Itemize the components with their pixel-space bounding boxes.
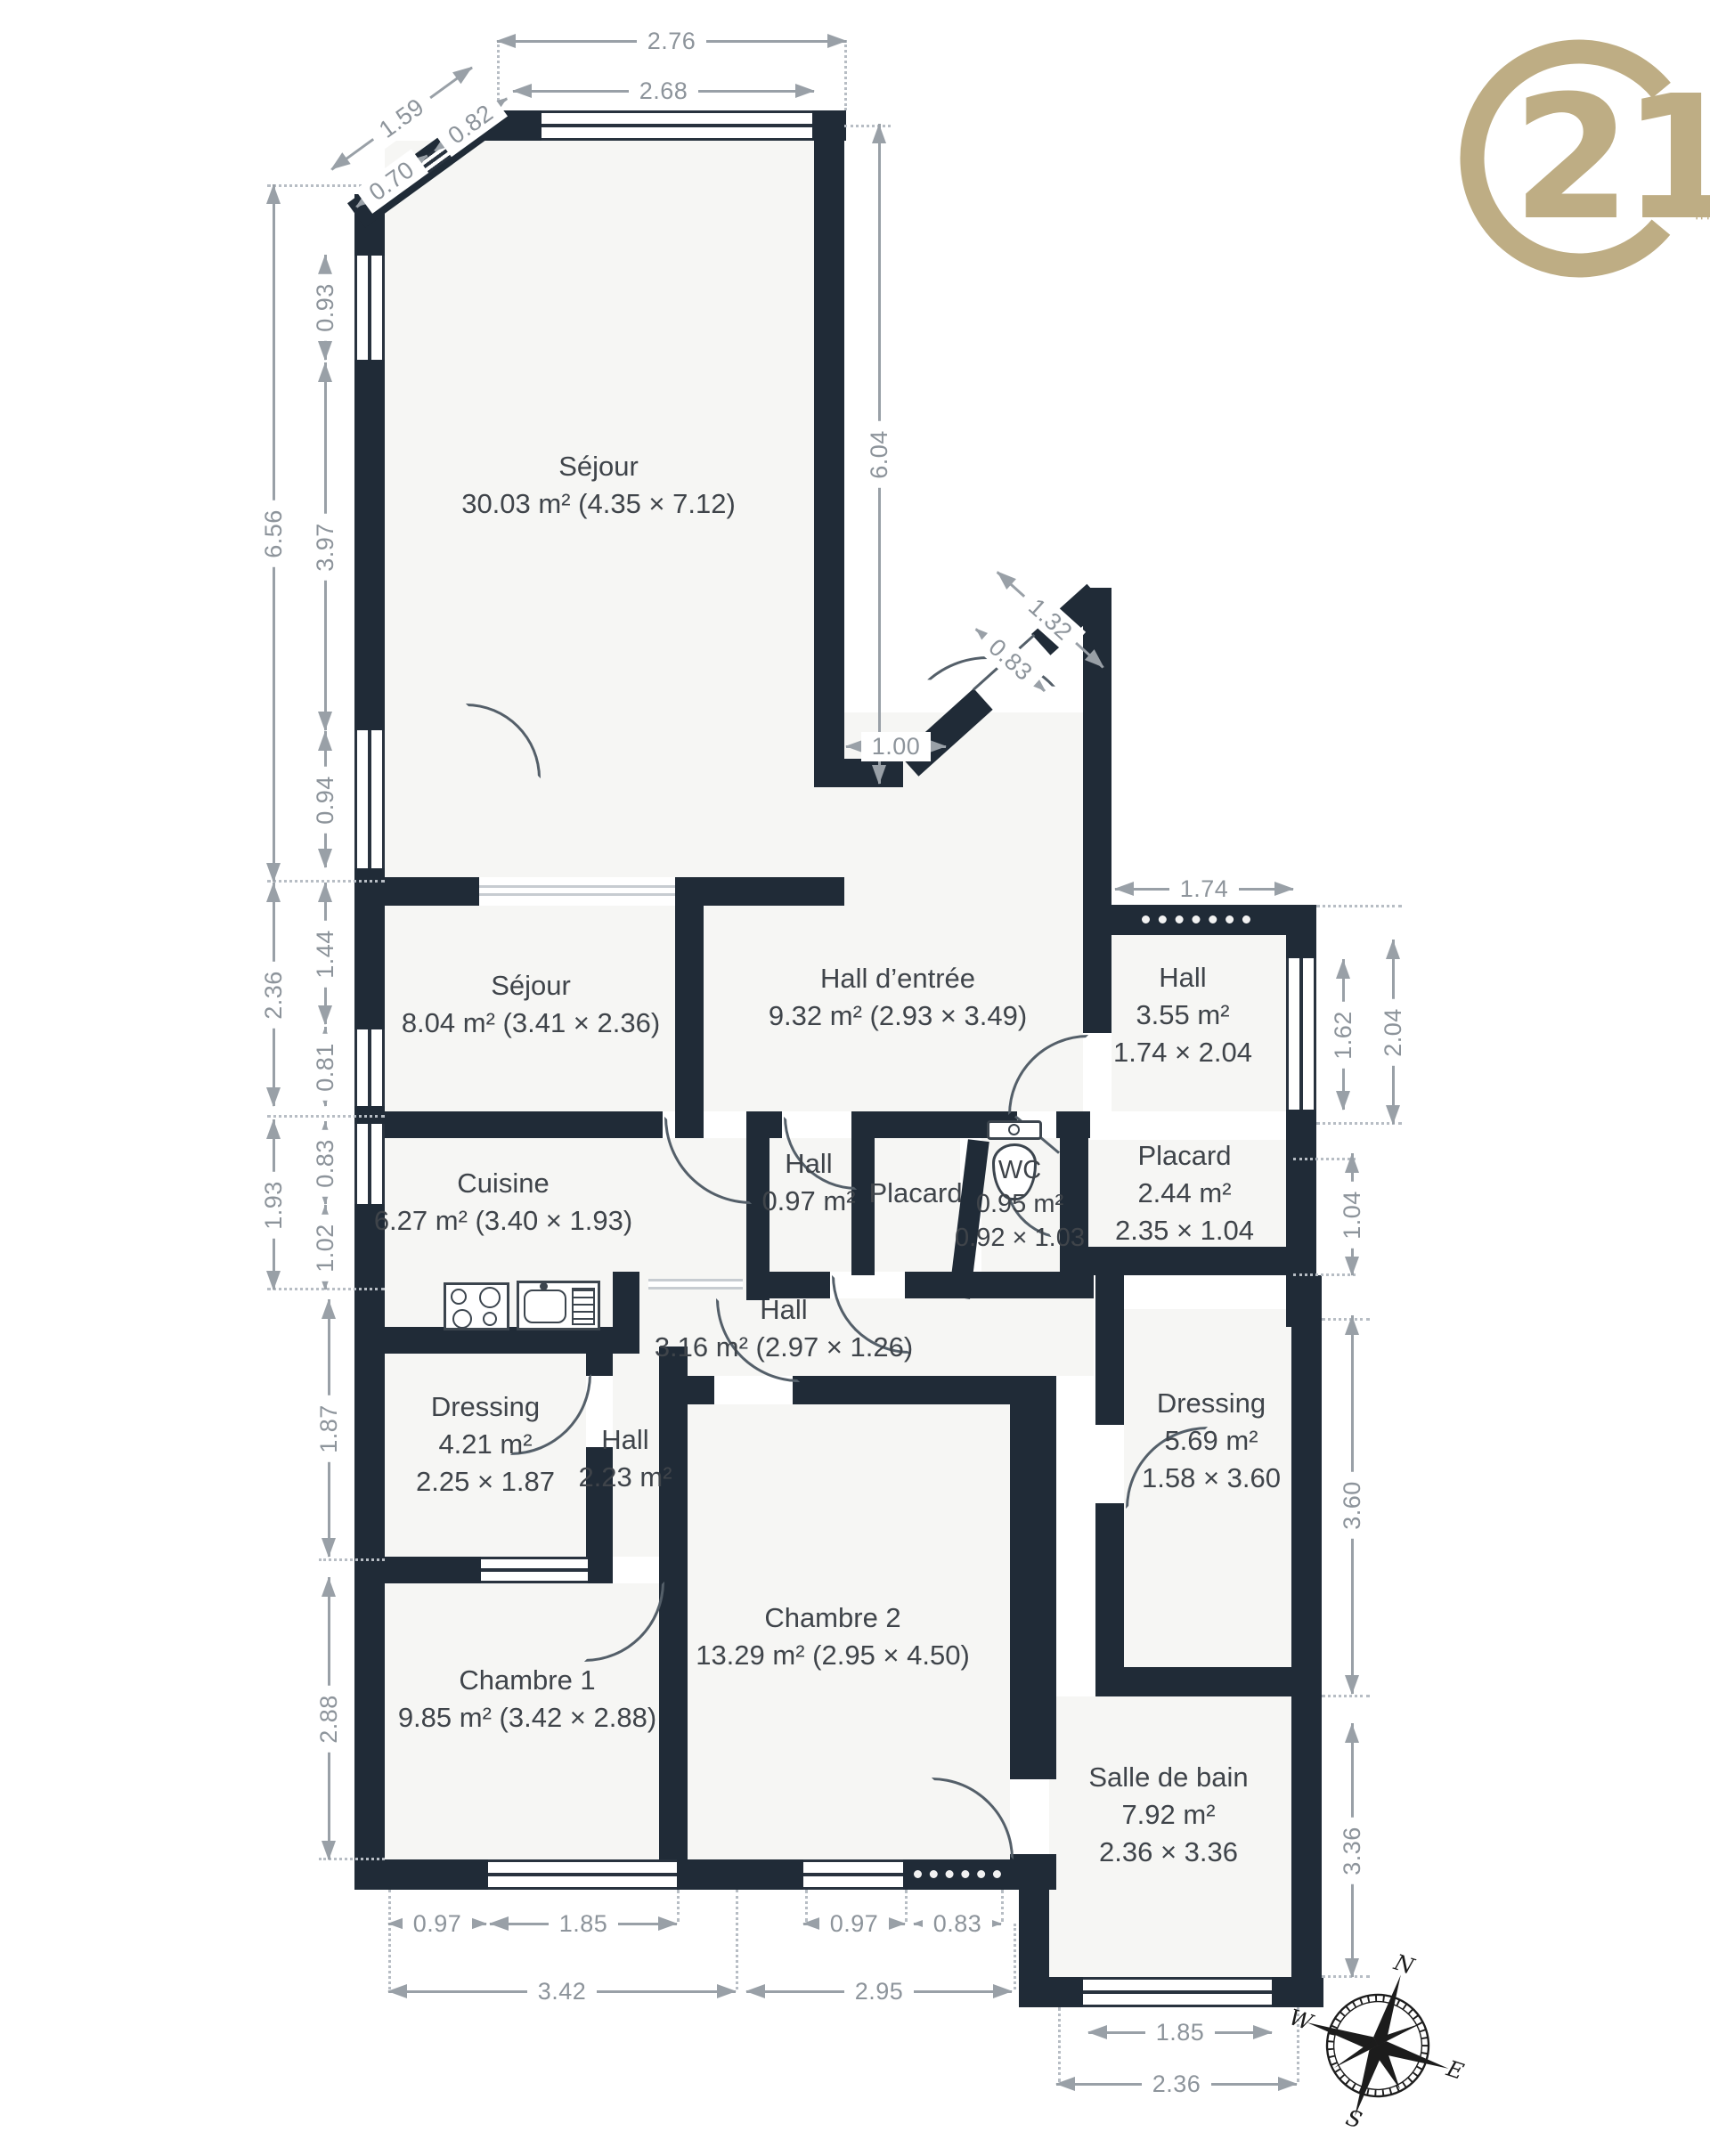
room-label-dressing-1: Dressing4.21 m²2.25 × 1.87 — [416, 1388, 555, 1501]
logo-number: 21 — [1512, 60, 1710, 258]
dim-arrow — [318, 712, 332, 731]
dim-arrow — [266, 1087, 281, 1107]
wall-opening — [648, 1279, 743, 1290]
dim-arrow — [266, 863, 281, 883]
dimension: 0.97 — [388, 1911, 486, 1936]
dimension-value: 0.94 — [311, 767, 340, 834]
extension-line — [1014, 1924, 1016, 1989]
dim-arrow — [886, 1916, 906, 1931]
dimension: 1.93 — [261, 1120, 286, 1290]
dimension: 3.36 — [1339, 1724, 1364, 1977]
window — [803, 1859, 903, 1890]
dim-arrow — [318, 341, 332, 361]
dim-arrow — [318, 1005, 332, 1025]
window-dashed — [1142, 915, 1250, 923]
room-label-placard-1: Placard — [868, 1175, 962, 1212]
dimension: 0.94 — [313, 732, 338, 867]
dimension: 1.62 — [1331, 960, 1356, 1110]
dimension: 0.83 — [914, 1911, 1001, 1936]
wall — [1019, 1696, 1049, 1779]
dimension: 1.02 — [313, 1206, 338, 1290]
room-name: Placard — [1115, 1137, 1254, 1175]
wall — [1062, 1247, 1291, 1275]
dimension: 0.93 — [313, 256, 338, 360]
room-name: Hall — [761, 1145, 855, 1183]
extension-line — [736, 1890, 738, 1989]
toilet-button-icon — [1008, 1124, 1020, 1135]
room-area: 5.69 m² — [1142, 1422, 1281, 1460]
room-label-wc: WC0.95 m²0.92 × 1.03 — [955, 1153, 1085, 1255]
dim-arrow — [872, 124, 886, 143]
dimension: 2.88 — [316, 1578, 341, 1859]
room-name: Hall — [578, 1421, 672, 1459]
room-name: Dressing — [1142, 1385, 1281, 1422]
dim-arrow — [318, 731, 332, 751]
window — [354, 730, 385, 868]
extension-line — [1322, 1695, 1370, 1697]
dimension: 0.83 — [313, 1122, 338, 1204]
dimension-value: 1.62 — [1329, 1002, 1358, 1069]
wall — [613, 1272, 639, 1354]
wall — [746, 1111, 782, 1138]
dimension-value: 2.36 — [1142, 2070, 1212, 2099]
window — [1083, 1977, 1272, 2007]
dimension-value: 1.02 — [311, 1215, 340, 1281]
dim-arrow — [1336, 1091, 1350, 1111]
compass-n: N — [1390, 1949, 1419, 1980]
dim-arrow — [993, 1984, 1013, 1998]
wall — [354, 194, 385, 1861]
dimension-value: 0.97 — [819, 1909, 890, 1939]
dim-arrow — [1274, 882, 1294, 896]
dim-arrow — [496, 34, 516, 48]
dimension: 1.87 — [316, 1300, 341, 1557]
wall — [354, 1327, 622, 1354]
room-label-sejour-1: Séjour30.03 m² (4.35 × 7.12) — [461, 448, 736, 523]
room-size: 2.35 × 1.04 — [1115, 1212, 1254, 1249]
room-name: Hall — [1113, 959, 1252, 997]
dim-arrow — [322, 1577, 336, 1597]
dimension-value: 2.36 — [259, 962, 289, 1029]
dim-arrow — [512, 84, 532, 98]
wall — [1291, 1275, 1322, 2007]
dimension-value: 1.87 — [314, 1395, 344, 1462]
dimension-value: 6.04 — [865, 421, 894, 488]
dimension: 2.95 — [746, 1979, 1012, 2004]
dimension: 1.00 — [846, 734, 946, 759]
dim-arrow — [1087, 2025, 1107, 2039]
room-name: Hall — [655, 1291, 913, 1329]
compass-e: E — [1443, 2054, 1467, 2084]
room-label-hall-355: Hall3.55 m²1.74 × 2.04 — [1113, 959, 1252, 1071]
dimension-value: 2.76 — [637, 27, 707, 56]
dim-arrow — [1114, 882, 1134, 896]
dimension: 2.36 — [1056, 2071, 1297, 2096]
dimension: 2.04 — [1380, 940, 1405, 1124]
room-name: WC — [955, 1153, 1085, 1187]
room-size: 1.74 × 2.04 — [1113, 1034, 1252, 1071]
dim-arrow — [1253, 2025, 1273, 2039]
dimension-value: 1.00 — [861, 732, 932, 761]
room-size: 3.16 m² (2.97 × 1.26) — [655, 1329, 913, 1366]
sink-faucet-icon — [540, 1282, 548, 1290]
dimension: 3.60 — [1339, 1316, 1364, 1694]
dimension-value: 0.97 — [403, 1909, 473, 1939]
dimension-value: 2.68 — [629, 77, 699, 106]
room-label-sejour-2: Séjour8.04 m² (3.41 × 2.36) — [402, 967, 660, 1042]
dimension: 1.85 — [490, 1911, 677, 1936]
room-area: 4.21 m² — [416, 1426, 555, 1463]
extension-line — [388, 1890, 391, 1989]
room-label-hall-316: Hall3.16 m² (2.97 × 1.26) — [655, 1291, 913, 1366]
dim-arrow — [1345, 1723, 1359, 1743]
extension-line — [267, 1115, 385, 1118]
dimension: 6.56 — [261, 185, 286, 882]
wall — [1095, 1503, 1124, 1696]
dim-arrow — [827, 34, 847, 48]
dim-arrow — [1055, 2077, 1075, 2091]
dimension-value: 6.56 — [259, 500, 289, 567]
wall — [1095, 1275, 1124, 1425]
room-name: Cuisine — [374, 1165, 632, 1202]
dimension-value: 3.60 — [1338, 1472, 1367, 1539]
dim-arrow — [489, 1916, 509, 1931]
wall — [1056, 1111, 1090, 1138]
dimension: 3.97 — [313, 363, 338, 730]
room-name: Placard — [868, 1175, 962, 1212]
dimension: 2.68 — [513, 78, 814, 103]
wall — [702, 877, 844, 906]
room-label-chambre-2: Chambre 213.29 m² (2.95 × 4.50) — [696, 1599, 970, 1674]
room-label-salle-de-bain: Salle de bain7.92 m²2.36 × 3.36 — [1088, 1759, 1248, 1871]
dimension: 1.44 — [313, 883, 338, 1024]
room-area: 2.23 m² — [578, 1459, 672, 1496]
room-label-chambre-1: Chambre 19.85 m² (3.42 × 2.88) — [398, 1662, 656, 1737]
room-size: 13.29 m² (2.95 × 4.50) — [696, 1637, 970, 1674]
dim-arrow — [322, 1299, 336, 1319]
dimension: 0.97 — [803, 1911, 905, 1936]
room-size: 30.03 m² (4.35 × 7.12) — [461, 485, 736, 523]
room-size: 8.04 m² (3.41 × 2.36) — [402, 1005, 660, 1042]
dim-arrow — [318, 883, 332, 902]
wall — [1083, 910, 1111, 1033]
wall-opening — [479, 885, 702, 896]
logo-trademark: ™ — [1690, 209, 1710, 236]
window — [481, 1557, 588, 1583]
stove-burner-icon — [479, 1287, 501, 1308]
room-label-hall-entree: Hall d’entrée9.32 m² (2.93 × 3.49) — [769, 960, 1027, 1035]
dimension-value: 0.81 — [311, 1034, 340, 1101]
wall — [1124, 1667, 1293, 1696]
room-name: Dressing — [416, 1388, 555, 1426]
wall — [793, 1376, 1017, 1404]
dimension-value: 1.04 — [1338, 1182, 1367, 1249]
dim-arrow — [1345, 1153, 1359, 1173]
dimension-value: 1.74 — [1169, 875, 1240, 904]
dimension-value: 2.95 — [844, 1977, 915, 2006]
room-name: Séjour — [461, 448, 736, 485]
dim-arrow — [1345, 1675, 1359, 1695]
century21-logo: 21 ™ — [1450, 25, 1710, 292]
room-area: 7.92 m² — [1088, 1796, 1248, 1834]
dimension: 2.36 — [261, 883, 286, 1106]
wall — [354, 1111, 663, 1138]
window-dashed — [914, 1870, 1001, 1878]
dim-arrow — [318, 362, 332, 382]
dim-arrow — [387, 1984, 407, 1998]
room-label-cuisine: Cuisine6.27 m² (3.40 × 1.93) — [374, 1165, 632, 1240]
stove-burner-icon — [483, 1312, 497, 1326]
room-name: Séjour — [402, 967, 660, 1005]
dimension-value: 0.83 — [923, 1909, 993, 1939]
dimension-value: 0.83 — [311, 1130, 340, 1197]
dim-arrow — [266, 1271, 281, 1290]
dim-arrow — [1386, 1105, 1400, 1125]
dim-arrow — [322, 1538, 336, 1558]
dimension-value: 3.97 — [311, 514, 340, 581]
dimension: 3.42 — [388, 1979, 736, 2004]
room-label-hall-097: Hall0.97 m² — [761, 1145, 855, 1220]
wall — [688, 1376, 714, 1404]
dimension: 6.04 — [867, 125, 892, 784]
dim-arrow — [318, 849, 332, 868]
room-size: 0.92 × 1.03 — [955, 1221, 1085, 1255]
room-size: 9.85 m² (3.42 × 2.88) — [398, 1699, 656, 1737]
room-name: Chambre 2 — [696, 1599, 970, 1637]
dimension-value: 2.88 — [314, 1686, 344, 1753]
dim-arrow — [872, 765, 886, 785]
dimension-value: 1.44 — [311, 921, 340, 988]
dimension: 1.04 — [1339, 1154, 1364, 1275]
dimension-value: 1.93 — [259, 1172, 289, 1239]
room-size: 2.36 × 3.36 — [1088, 1834, 1248, 1871]
room-area: 3.55 m² — [1113, 997, 1252, 1034]
dim-arrow — [266, 883, 281, 902]
wall — [675, 877, 704, 1138]
wall — [586, 1346, 613, 1376]
room-area: 2.44 m² — [1115, 1175, 1254, 1212]
room-area: 0.95 m² — [955, 1187, 1085, 1221]
stove-burner-icon — [451, 1289, 467, 1305]
dim-arrow — [1336, 959, 1350, 979]
dim-arrow — [795, 84, 815, 98]
window — [1286, 958, 1316, 1110]
room-label-dressing-2: Dressing5.69 m²1.58 × 3.60 — [1142, 1385, 1281, 1497]
room-name: Salle de bain — [1088, 1759, 1248, 1796]
dim-arrow — [1386, 940, 1400, 959]
dim-arrow — [322, 1841, 336, 1860]
room-size: 2.25 × 1.87 — [416, 1463, 555, 1501]
room-name: Hall d’entrée — [769, 960, 1027, 997]
dim-arrow — [717, 1984, 737, 1998]
compass-s: S — [1343, 2104, 1365, 2134]
dimension-value: 1.85 — [549, 1909, 619, 1939]
room-name: Chambre 1 — [398, 1662, 656, 1699]
extension-line — [319, 1558, 385, 1561]
wall — [814, 110, 844, 787]
dim-arrow — [1345, 1315, 1359, 1335]
dimension-value: 3.42 — [527, 1977, 598, 2006]
window — [488, 1859, 677, 1890]
dimension-value: 2.04 — [1379, 999, 1408, 1066]
wall — [905, 1272, 1094, 1298]
dimension: 1.74 — [1115, 876, 1293, 901]
room-label-placard-2: Placard2.44 m²2.35 × 1.04 — [1115, 1137, 1254, 1249]
dimension: 2.76 — [497, 28, 846, 53]
dim-arrow — [745, 1984, 765, 1998]
dimension-value: 3.36 — [1338, 1818, 1367, 1884]
floor-plan-page: 6.56 0.93 3.97 0.94 2.36 1.44 0.81 1.93 … — [0, 0, 1710, 2156]
sink-bowl-icon — [524, 1290, 566, 1323]
dim-arrow — [318, 255, 332, 274]
dimension-value: 1.85 — [1145, 2018, 1216, 2047]
room-area: 0.97 m² — [761, 1183, 855, 1220]
extension-line — [1316, 905, 1402, 907]
compass-w: W — [1286, 2004, 1318, 2036]
dim-arrow — [658, 1916, 678, 1931]
dim-arrow — [266, 184, 281, 204]
dimension: 1.85 — [1088, 2020, 1272, 2045]
dimension-value: 0.93 — [311, 274, 340, 341]
dim-arrow — [1345, 1257, 1359, 1276]
window — [354, 256, 385, 360]
room-label-hall-223: Hall2.23 m² — [578, 1421, 672, 1496]
room-size: 6.27 m² (3.40 × 1.93) — [374, 1202, 632, 1240]
dimension: 0.81 — [313, 1028, 338, 1106]
stove-burner-icon — [452, 1309, 472, 1329]
room-size: 9.32 m² (2.93 × 3.49) — [769, 997, 1027, 1035]
sink-drainboard-icon — [572, 1288, 595, 1325]
room-size: 1.58 × 3.60 — [1142, 1460, 1281, 1497]
window — [354, 1029, 385, 1106]
dim-arrow — [266, 1119, 281, 1139]
window — [541, 110, 816, 141]
